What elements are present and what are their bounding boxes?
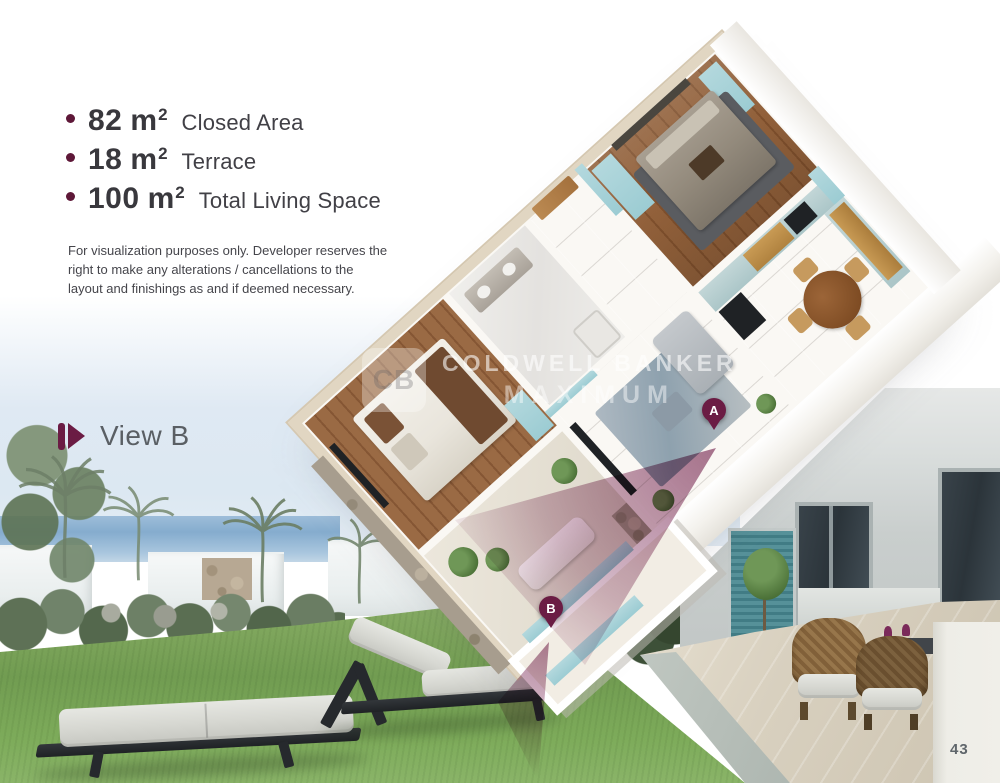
watermark-text: COLDWELL BANKER MAXIMUM xyxy=(442,350,737,410)
terrace-tree xyxy=(737,548,795,634)
white-pillar xyxy=(933,622,1000,783)
lounger-leg xyxy=(353,663,387,726)
disclaimer-line: layout and finishings as and if deemed n… xyxy=(68,280,388,299)
marker-pin-b: B xyxy=(539,596,563,620)
wicker-armchair xyxy=(852,636,932,732)
disclaimer-line: For visualization purposes only. Develop… xyxy=(68,242,388,261)
spec-superscript: 2 xyxy=(158,144,167,164)
disclaimer-line: right to make any alterations / cancella… xyxy=(68,261,388,280)
marker-b-label: B xyxy=(546,602,555,615)
chair-leg xyxy=(864,714,872,730)
page-number: 43 xyxy=(950,741,969,758)
bullet-icon xyxy=(66,192,75,201)
palm-tree xyxy=(96,482,181,582)
potted-plant xyxy=(546,453,583,490)
spec-value: 18 xyxy=(88,143,122,177)
spec-superscript: 2 xyxy=(158,105,167,125)
spec-label: Terrace xyxy=(182,149,257,175)
chair-cushion xyxy=(798,674,860,698)
coldwell-banker-logo: CB xyxy=(362,348,426,412)
chair-leg xyxy=(800,702,808,720)
watermark-line1: COLDWELL BANKER xyxy=(442,350,737,377)
view-b-label-group: View B xyxy=(58,420,190,452)
wine-glass xyxy=(902,624,910,636)
tree-foliage xyxy=(743,548,789,600)
spec-unit: m xyxy=(148,182,175,216)
spec-value: 82 xyxy=(88,104,122,138)
marker-pin-a: A xyxy=(702,398,726,422)
bullet-icon xyxy=(66,153,75,162)
watermark: CB COLDWELL BANKER MAXIMUM xyxy=(362,348,737,412)
spec-unit: m xyxy=(130,104,157,138)
potted-plant xyxy=(442,541,484,583)
bullet-icon xyxy=(66,114,75,123)
spec-unit: m xyxy=(130,143,157,177)
watermark-line2: MAXIMUM xyxy=(442,381,737,410)
disclaimer: For visualization purposes only. Develop… xyxy=(68,242,388,299)
spec-superscript: 2 xyxy=(175,183,184,203)
spec-item-closed-area: 82 m 2 Closed Area xyxy=(66,104,381,143)
view-marker-bar-icon xyxy=(58,423,65,450)
view-marker-play-icon xyxy=(68,423,85,449)
spec-value: 100 xyxy=(88,182,140,216)
spec-list: 82 m 2 Closed Area 18 m 2 Terrace 100 m … xyxy=(66,104,381,221)
chair-cushion xyxy=(862,688,922,710)
bed-throw xyxy=(688,144,725,180)
potted-plant xyxy=(752,390,780,418)
spec-label: Closed Area xyxy=(182,110,304,136)
spec-item-total-living-space: 100 m 2 Total Living Space xyxy=(66,182,381,221)
brochure-page: CB COLDWELL BANKER MAXIMUM A B 82 m 2 Cl… xyxy=(0,0,1000,783)
chair-leg xyxy=(910,714,918,730)
marker-a-label: A xyxy=(709,404,718,417)
spec-item-terrace: 18 m 2 Terrace xyxy=(66,143,381,182)
garden-rocks xyxy=(84,596,264,630)
spec-label: Total Living Space xyxy=(199,188,381,214)
bed-pillow xyxy=(390,432,429,472)
view-b-label: View B xyxy=(100,420,190,452)
